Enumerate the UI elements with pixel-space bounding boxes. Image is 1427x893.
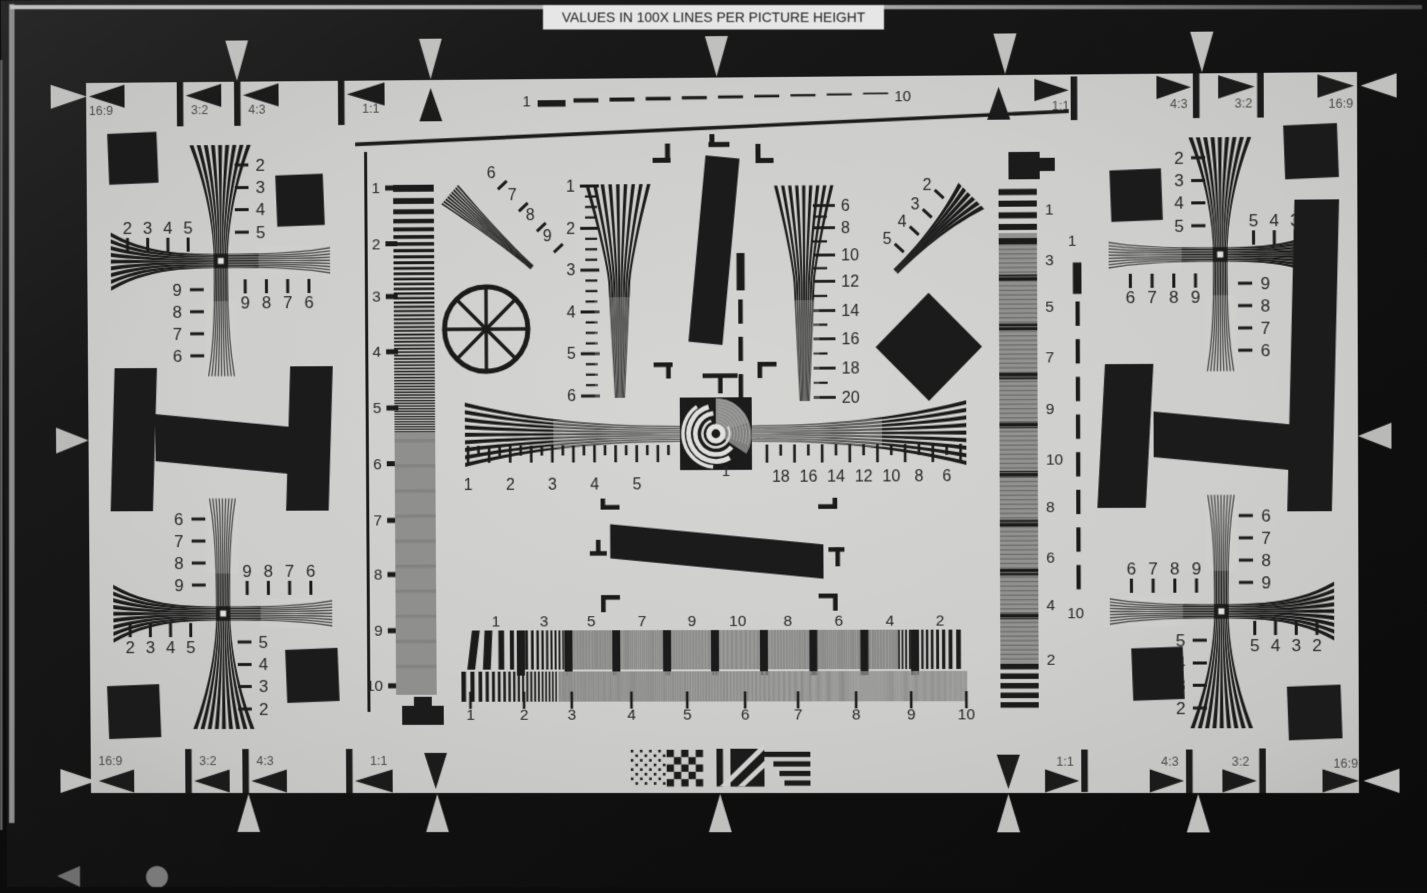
svg-text:VALUES IN 100X LINES PER PICTU: VALUES IN 100X LINES PER PICTURE HEIGHT: [562, 10, 866, 25]
